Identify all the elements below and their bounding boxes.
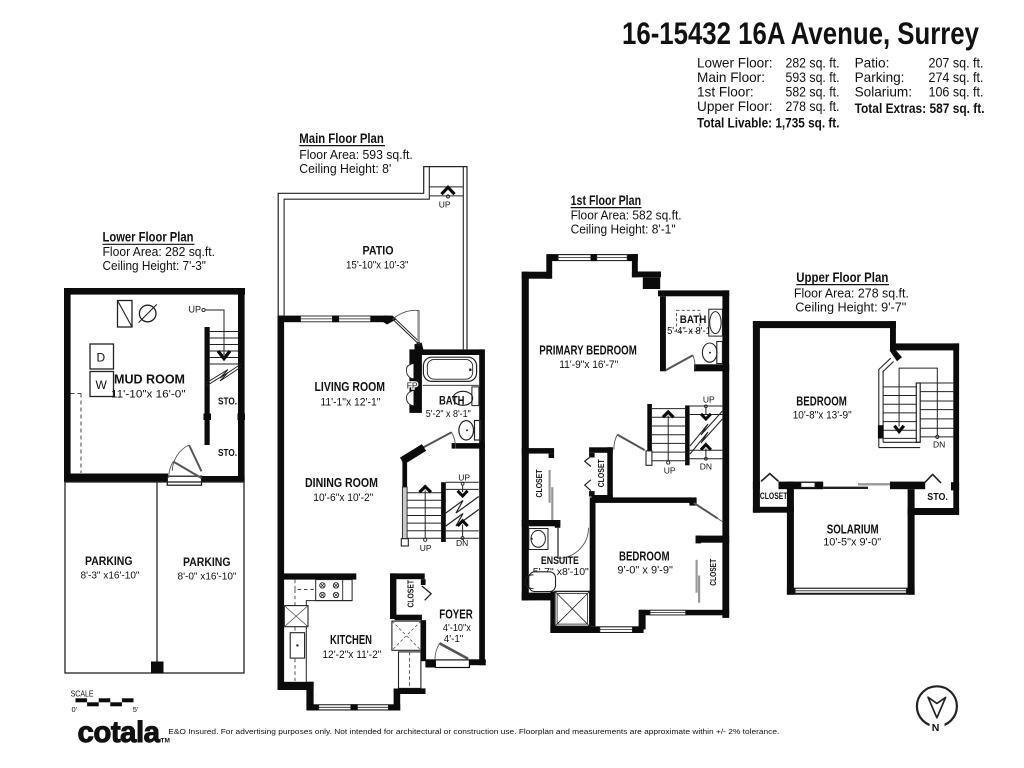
svg-text:Solarium:: Solarium:	[855, 85, 912, 100]
svg-text:UP: UP	[189, 304, 202, 314]
svg-text:UP: UP	[458, 473, 470, 483]
svg-text:10'-6"x 10'-2": 10'-6"x 10'-2"	[313, 492, 373, 504]
svg-text:593 sq. ft.: 593 sq. ft.	[786, 70, 840, 85]
svg-text:12'-2"x 11'-2": 12'-2"x 11'-2"	[322, 649, 381, 661]
svg-text:PARKING: PARKING	[85, 554, 133, 568]
svg-text:D: D	[97, 351, 106, 365]
svg-text:E&O Insured. For advertising p: E&O Insured. For advertising purposes on…	[168, 727, 779, 736]
svg-text:Lower Floor Plan: Lower Floor Plan	[103, 229, 194, 245]
svg-text:W: W	[96, 378, 108, 392]
svg-text:1st Floor Plan: 1st Floor Plan	[571, 192, 642, 208]
svg-text:15'-10"x 10'-3": 15'-10"x 10'-3"	[346, 259, 409, 271]
svg-text:207 sq. ft.: 207 sq. ft.	[929, 56, 984, 71]
svg-text:Main Floor:: Main Floor:	[697, 70, 765, 85]
svg-text:5'-4" x 8'-1": 5'-4" x 8'-1"	[667, 326, 714, 337]
svg-text:4'-1": 4'-1"	[444, 633, 464, 645]
svg-text:LIVING ROOM: LIVING ROOM	[315, 380, 386, 394]
svg-text:Ceiling Height: 9'-7": Ceiling Height: 9'-7"	[795, 299, 906, 314]
svg-text:Floor Area: 593 sq.ft.: Floor Area: 593 sq.ft.	[299, 147, 413, 162]
svg-text:UP: UP	[664, 466, 676, 476]
svg-text:Floor Area: 278 sq.ft.: Floor Area: 278 sq.ft.	[794, 285, 909, 300]
svg-text:CLOSET: CLOSET	[534, 469, 544, 498]
svg-text:CLOSET: CLOSET	[760, 491, 788, 501]
svg-text:BEDROOM: BEDROOM	[619, 549, 670, 563]
svg-text:PRIMARY BEDROOM: PRIMARY BEDROOM	[539, 344, 637, 358]
svg-text:1st Floor:: 1st Floor:	[697, 85, 754, 100]
svg-text:TM: TM	[161, 738, 170, 745]
svg-text:278 sq. ft.: 278 sq. ft.	[786, 99, 840, 114]
svg-text:Upper Floor Plan: Upper Floor Plan	[796, 269, 888, 285]
svg-text:KITCHEN: KITCHEN	[330, 633, 372, 647]
svg-text:DN: DN	[700, 461, 712, 471]
svg-text:11'-9"x 16'-7": 11'-9"x 16'-7"	[559, 359, 618, 371]
svg-text:16-15432 16A Avenue, Surrey: 16-15432 16A Avenue, Surrey	[622, 15, 979, 51]
svg-text:Total Livable: 1,735 sq. ft.: Total Livable: 1,735 sq. ft.	[697, 116, 840, 131]
svg-text:DN: DN	[456, 538, 468, 548]
svg-text:MUD ROOM: MUD ROOM	[114, 373, 185, 387]
svg-text:282 sq. ft.: 282 sq. ft.	[786, 56, 840, 71]
svg-text:N: N	[932, 722, 940, 734]
svg-text:10'-8"x 13'-9": 10'-8"x 13'-9"	[793, 409, 852, 421]
svg-text:FP: FP	[407, 380, 418, 390]
svg-text:SCALE: SCALE	[71, 689, 94, 699]
svg-text:Main Floor Plan: Main Floor Plan	[299, 130, 384, 146]
svg-text:0': 0'	[72, 705, 78, 714]
svg-text:Upper Floor:: Upper Floor:	[697, 99, 773, 114]
svg-text:STO.: STO.	[218, 447, 237, 459]
svg-text:274 sq. ft.: 274 sq. ft.	[929, 70, 984, 85]
svg-text:Ceiling Height: 8'-1": Ceiling Height: 8'-1"	[571, 221, 676, 236]
svg-text:Ceiling Height: 7'-3": Ceiling Height: 7'-3"	[103, 258, 207, 273]
svg-text:UP: UP	[420, 543, 432, 553]
svg-text:11'-10"x 16'-0": 11'-10"x 16'-0"	[111, 388, 186, 400]
svg-text:8'-3" x16'-10": 8'-3" x16'-10"	[81, 570, 140, 582]
svg-text:UP: UP	[703, 395, 715, 405]
svg-text:STO.: STO.	[927, 492, 948, 503]
svg-text:11'-1"x 12'-1": 11'-1"x 12'-1"	[320, 396, 380, 408]
svg-text:5'-2" x 8'-1": 5'-2" x 8'-1"	[426, 408, 471, 420]
svg-text:SOLARIUM: SOLARIUM	[827, 522, 879, 536]
svg-text:CLOSET: CLOSET	[708, 558, 718, 586]
svg-text:cotala: cotala	[78, 716, 161, 749]
svg-text:CLOSET: CLOSET	[406, 579, 416, 607]
svg-text:9'-0" x 9'-9": 9'-0" x 9'-9"	[617, 564, 673, 576]
svg-text:Total Extras: 587 sq. ft.: Total Extras: 587 sq. ft.	[855, 101, 985, 116]
svg-text:8'-0" x16'-10": 8'-0" x16'-10"	[178, 571, 237, 583]
svg-text:10'-5"x 9'-0": 10'-5"x 9'-0"	[823, 536, 881, 548]
svg-text:Parking:: Parking:	[855, 70, 905, 85]
svg-text:UP: UP	[439, 200, 451, 210]
svg-text:BATH: BATH	[439, 395, 465, 407]
svg-text:PATIO: PATIO	[363, 245, 394, 257]
svg-text:DINING ROOM: DINING ROOM	[305, 476, 378, 490]
svg-text:DN: DN	[933, 439, 945, 449]
svg-text:STO.: STO.	[218, 396, 237, 408]
svg-text:Ceiling Height: 8': Ceiling Height: 8'	[299, 161, 391, 176]
svg-text:FOYER: FOYER	[439, 607, 473, 621]
svg-text:ENSUITE: ENSUITE	[541, 555, 579, 567]
svg-text:Floor Area: 282 sq.ft.: Floor Area: 282 sq.ft.	[103, 244, 216, 259]
svg-text:5': 5'	[133, 705, 139, 714]
svg-text:BEDROOM: BEDROOM	[796, 394, 847, 408]
svg-text:Lower Floor:: Lower Floor:	[697, 56, 773, 71]
svg-text:PARKING: PARKING	[183, 555, 231, 569]
svg-text:CLOSET: CLOSET	[596, 459, 606, 488]
svg-text:Floor Area: 582 sq.ft.: Floor Area: 582 sq.ft.	[571, 207, 682, 222]
svg-text:582 sq. ft.: 582 sq. ft.	[786, 85, 840, 100]
svg-text:106 sq. ft.: 106 sq. ft.	[929, 85, 984, 100]
svg-text:Patio:: Patio:	[855, 56, 890, 71]
svg-text:BATH: BATH	[680, 314, 707, 326]
